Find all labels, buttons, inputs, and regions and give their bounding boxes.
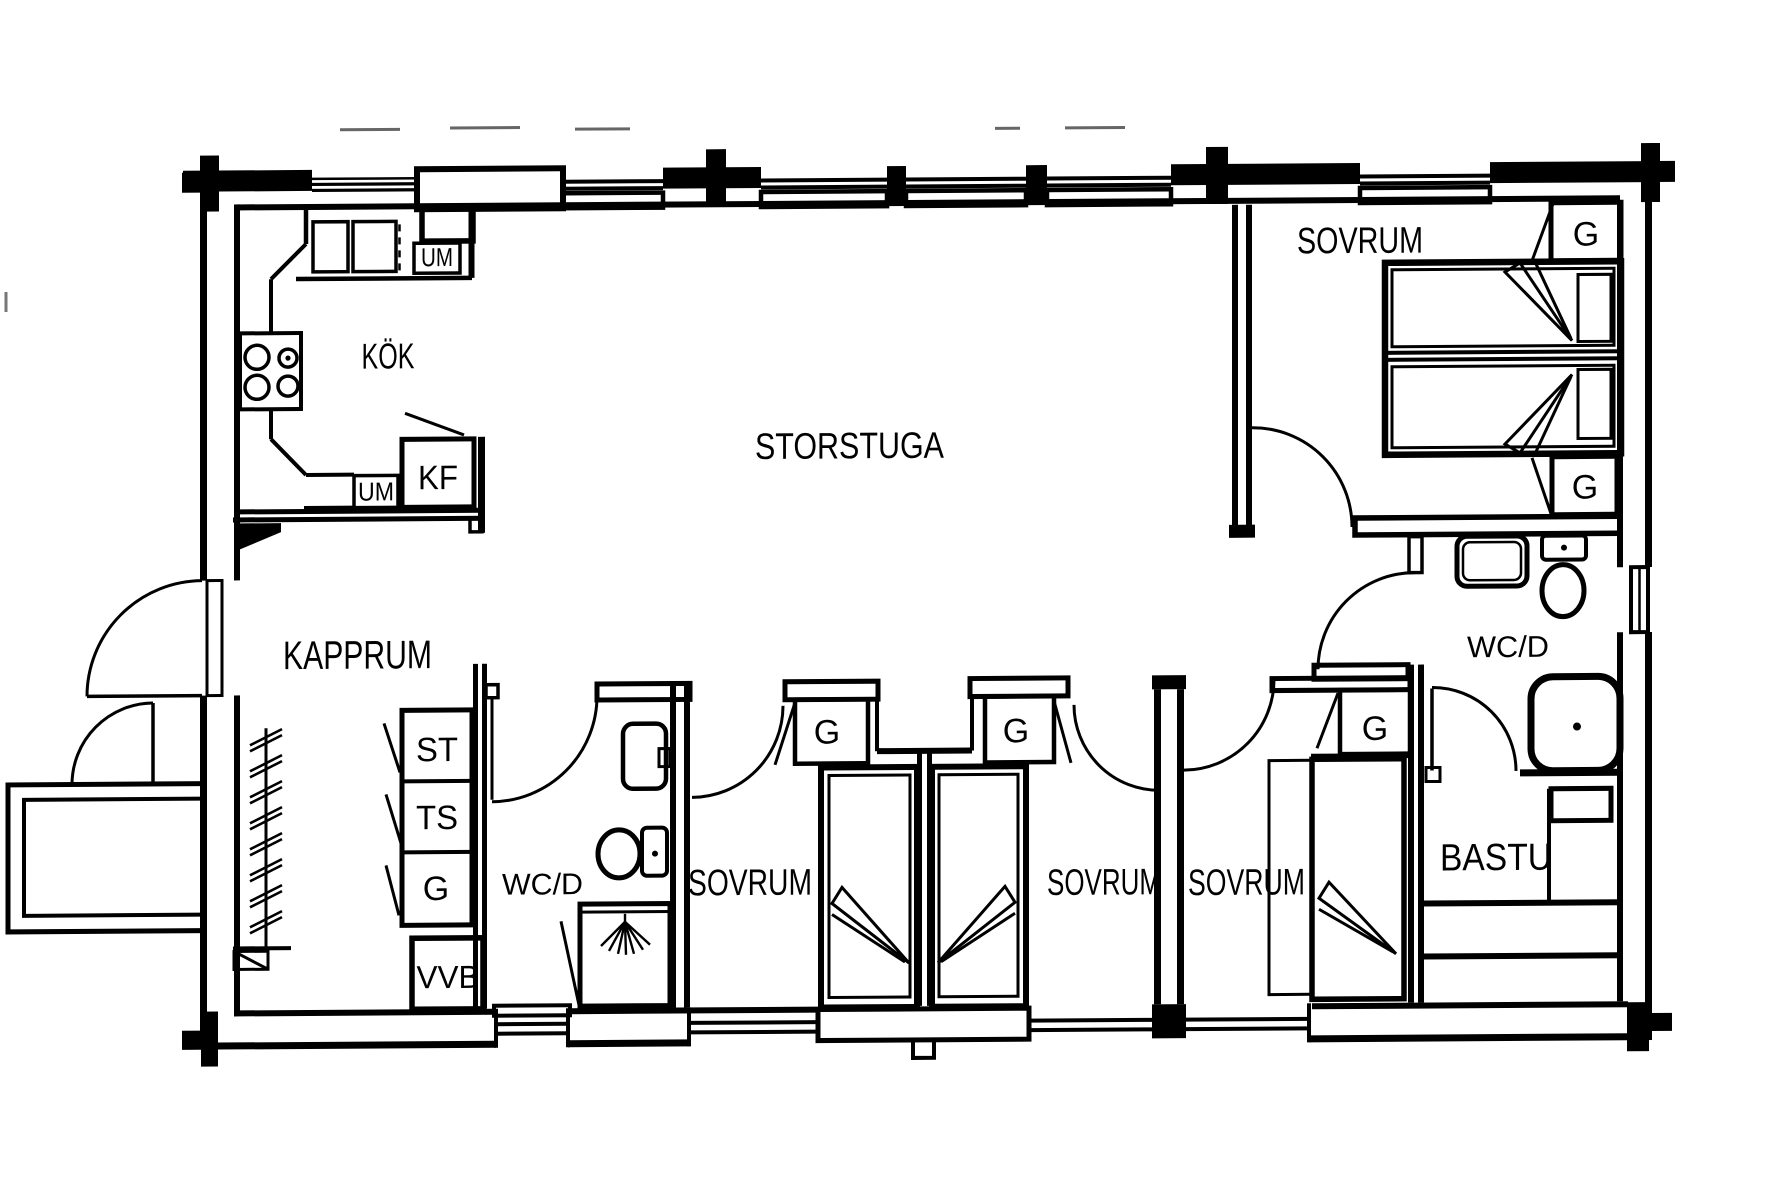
svg-text:ST: ST: [416, 731, 458, 769]
svg-text:SOVRUM: SOVRUM: [688, 862, 812, 904]
svg-text:SOVRUM: SOVRUM: [1188, 861, 1305, 903]
svg-text:G: G: [1573, 215, 1599, 253]
svg-text:VVB: VVB: [417, 959, 480, 995]
svg-text:G: G: [1003, 712, 1029, 750]
svg-text:SOVRUM: SOVRUM: [1297, 220, 1423, 262]
svg-text:KAPPRUM: KAPPRUM: [283, 633, 432, 678]
svg-text:G: G: [423, 870, 449, 908]
svg-text:G: G: [1362, 710, 1388, 748]
svg-text:UM: UM: [421, 242, 453, 272]
svg-text:KF: KF: [418, 459, 458, 497]
svg-text:TS: TS: [416, 799, 458, 837]
svg-text:KÖK: KÖK: [362, 335, 415, 376]
svg-text:G: G: [814, 713, 840, 751]
svg-text:WC/D: WC/D: [502, 868, 583, 902]
svg-text:WC/D: WC/D: [1467, 631, 1549, 665]
svg-text:G: G: [1572, 468, 1598, 506]
svg-text:SOVRUM: SOVRUM: [1047, 861, 1161, 903]
svg-text:UM: UM: [358, 476, 394, 506]
svg-text:STORSTUGA: STORSTUGA: [755, 425, 944, 467]
svg-text:BASTU: BASTU: [1440, 837, 1552, 880]
